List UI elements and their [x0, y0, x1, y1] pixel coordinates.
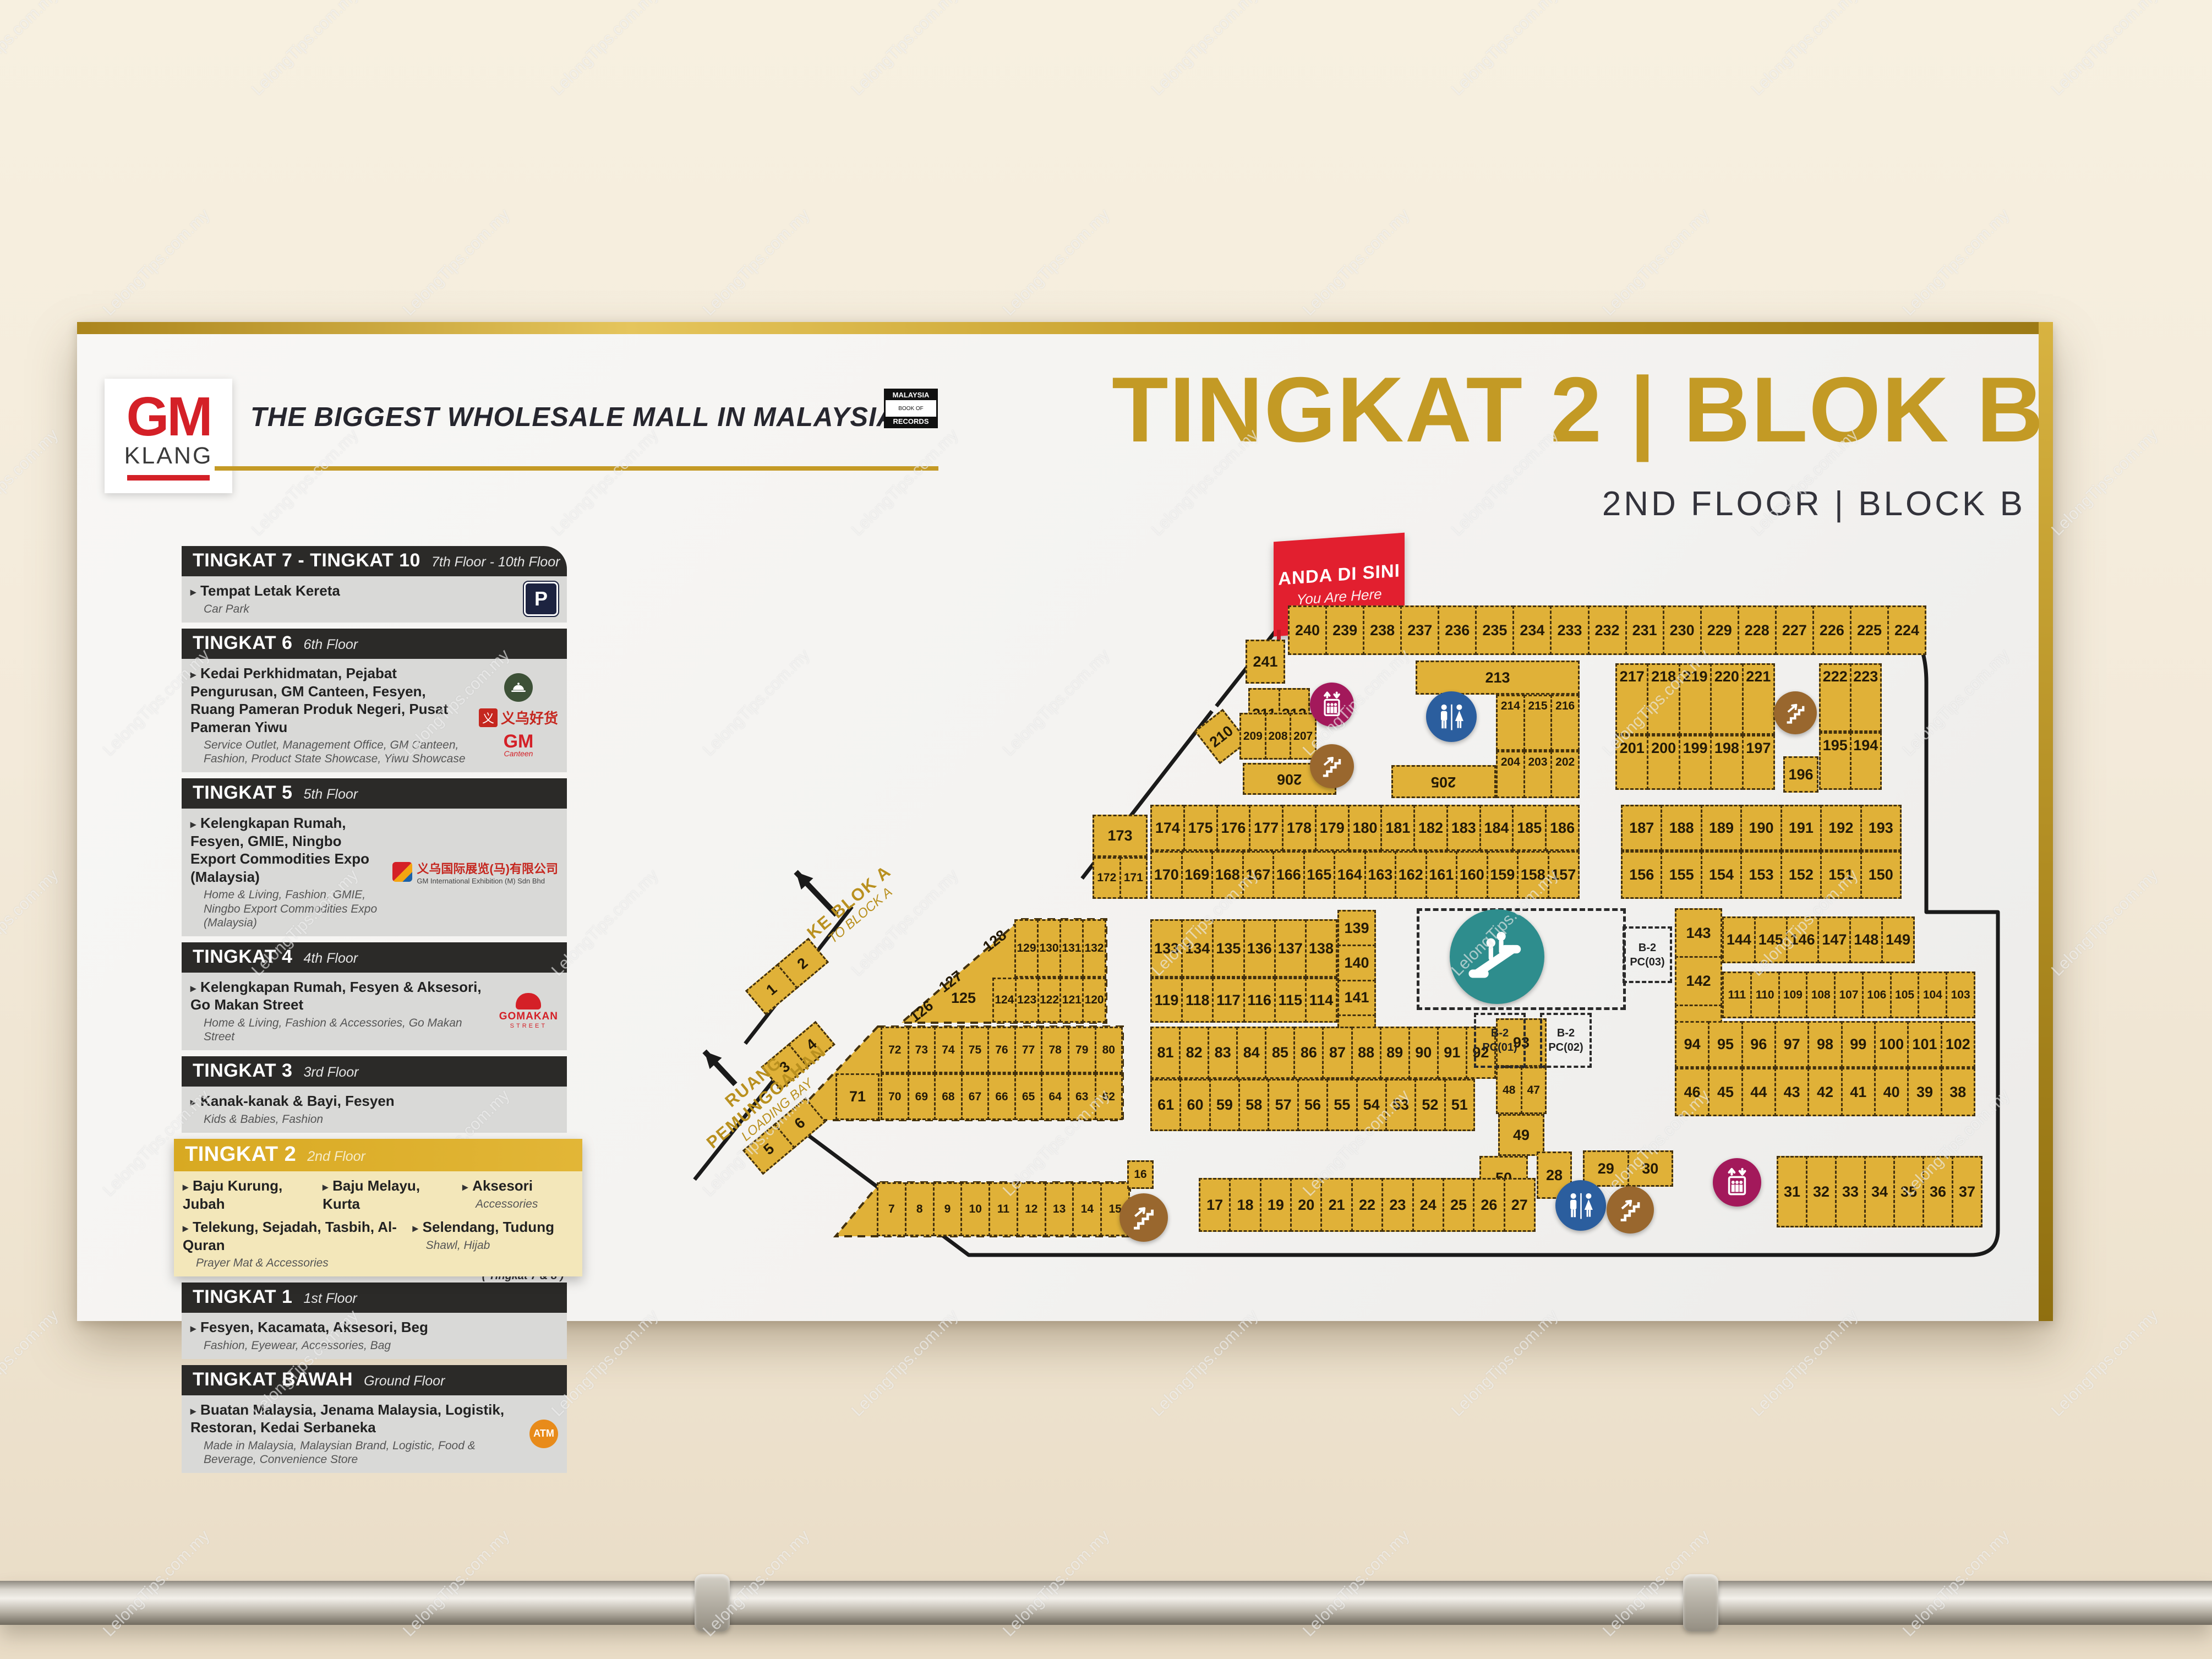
lot-number: 47	[1527, 1084, 1540, 1097]
lot-number: 10	[969, 1203, 982, 1216]
lot-number: 95	[1717, 1036, 1734, 1053]
map-lot: 161	[1425, 851, 1458, 899]
map-lot: 169	[1181, 851, 1214, 899]
lot-number: 6	[791, 1114, 808, 1132]
map-lot: 192	[1820, 805, 1861, 851]
lot-group-grp119: 119118117116115114	[1150, 978, 1337, 1023]
map-lot: 98	[1807, 1021, 1842, 1068]
lot-group-lot16: 16	[1127, 1160, 1154, 1189]
gm-klang-logo: GM KLANG	[105, 379, 232, 493]
lot-number: 203	[1528, 756, 1547, 769]
map-lot: 230	[1663, 605, 1702, 655]
map-lot: 76	[987, 1027, 1016, 1073]
map-lot: 172	[1093, 857, 1121, 899]
lot-number: 134	[1185, 940, 1210, 957]
section-body: ▸Buatan Malaysia, Jenama Malaysia, Logis…	[182, 1395, 567, 1473]
map-lot: 231	[1625, 605, 1664, 655]
lot-number: 185	[1517, 820, 1542, 837]
section-title: TINGKAT 7 - TINGKAT 10	[193, 550, 420, 571]
lot-number: 207	[1293, 730, 1313, 743]
lot-number: 215	[1528, 700, 1547, 713]
lot-number: 142	[1686, 973, 1711, 990]
directory-section-tingkat-3: TINGKAT 3 3rd Floor ▸Kanak-kanak & Bayi,…	[182, 1056, 567, 1133]
lot-group-lot49: 49	[1498, 1114, 1544, 1156]
lot-group-grp46: 464544434241403938	[1675, 1068, 1975, 1116]
chef-hat-icon	[516, 993, 541, 1009]
lot-number: 232	[1595, 622, 1620, 639]
map-lot: 147	[1817, 916, 1851, 963]
lot-number: 123	[1017, 994, 1036, 1007]
map-lot: 225	[1850, 605, 1889, 655]
lot-number: 192	[1828, 820, 1853, 837]
map-lot: 91	[1437, 1027, 1467, 1079]
lot-number: 122	[1040, 994, 1059, 1007]
lot-number: 84	[1243, 1044, 1260, 1061]
map-lot: 144	[1722, 916, 1756, 963]
map-lot: 157	[1548, 851, 1580, 899]
lot-number: 157	[1551, 866, 1576, 883]
lot-group-grp144: 144145146147148149	[1722, 916, 1915, 963]
lot-number: 146	[1790, 931, 1815, 948]
lot-number: 23	[1389, 1197, 1406, 1214]
map-lot: 181	[1380, 805, 1415, 851]
map-lot: 213	[1416, 661, 1580, 695]
item-my: ▸Kanak-kanak & Bayi, Fesyen	[190, 1092, 558, 1110]
map-lot: 156	[1621, 851, 1662, 899]
item-my: ▸Aksesori	[462, 1177, 566, 1195]
board-gold-top-edge	[77, 322, 2053, 334]
section-floor-en: 4th Floor	[303, 951, 358, 967]
lift-icon	[1310, 683, 1354, 727]
lot-number: 143	[1686, 925, 1711, 942]
lot-number: 68	[942, 1090, 954, 1104]
map-lot: 124	[992, 978, 1017, 1023]
section-body: ▸Kanak-kanak & Bayi, Fesyen Kids & Babie…	[182, 1087, 567, 1133]
map-lot: 117	[1212, 978, 1244, 1023]
map-lot: 42	[1807, 1068, 1842, 1116]
lot-number: 89	[1386, 1044, 1403, 1061]
badge-line-1: MALAYSIA	[886, 390, 936, 400]
section-floor-en: 5th Floor	[303, 787, 358, 803]
map-lot: 18	[1229, 1178, 1261, 1232]
kiosk-label: B-2	[1557, 1026, 1575, 1040]
map-lot: 238	[1363, 605, 1402, 655]
lot-number: 90	[1415, 1044, 1432, 1061]
lot-group-grp7: 789101112131415	[877, 1182, 1130, 1236]
map-lot: 129	[1014, 919, 1039, 978]
map-lot: 34	[1864, 1156, 1895, 1227]
lot-number: 167	[1246, 866, 1270, 883]
map-lot: 220	[1710, 663, 1743, 735]
map-lot: 30	[1627, 1150, 1674, 1187]
map-lot: 33	[1835, 1156, 1866, 1227]
map-lot: 80	[1095, 1027, 1123, 1073]
section-title: TINGKAT 1	[193, 1286, 292, 1308]
section-header: TINGKAT 4 4th Floor	[182, 942, 567, 973]
lot-number: 7	[888, 1203, 895, 1216]
map-lot: 37	[1952, 1156, 1982, 1227]
map-lot: 64	[1041, 1073, 1069, 1120]
malaysia-book-of-records-badge: MALAYSIA BOOK OF RECORDS	[884, 389, 938, 428]
section-title: TINGKAT 5	[193, 782, 292, 804]
photo-watermark: LelongTips.com.my	[548, 0, 662, 100]
lot-number: 111	[1728, 989, 1746, 1002]
lot-number: 96	[1750, 1036, 1767, 1053]
lot-group-grp217: 217218219220221	[1615, 663, 1775, 735]
map-lot: 67	[961, 1073, 990, 1120]
map-lot: 110	[1750, 972, 1780, 1018]
photo-watermark: LelongTips.com.my	[0, 0, 62, 100]
lot-number: 132	[1084, 942, 1104, 955]
map-lot: 229	[1700, 605, 1739, 655]
lot-number: 24	[1420, 1197, 1437, 1214]
map-lot-label: 125	[951, 990, 976, 1007]
lot-number: 168	[1215, 866, 1240, 883]
logo-klang-text: KLANG	[124, 443, 213, 470]
lot-number: 155	[1669, 866, 1694, 883]
lot-number: 102	[1946, 1036, 1970, 1053]
lot-number: 172	[1097, 871, 1116, 885]
map-lot: 155	[1661, 851, 1702, 899]
map-lot: 228	[1738, 605, 1777, 655]
lot-number: 130	[1039, 942, 1058, 955]
section-title: TINGKAT 6	[193, 632, 292, 654]
lot-number: 170	[1154, 866, 1179, 883]
item-en: Car Park	[204, 602, 518, 616]
map-lot: 46	[1675, 1068, 1709, 1116]
map-lot: 216	[1550, 695, 1580, 751]
map-lot: 86	[1293, 1027, 1324, 1079]
stairs-icon	[1310, 744, 1354, 788]
map-lot: 103	[1946, 972, 1975, 1018]
map-lot: 131	[1059, 919, 1084, 978]
lot-number: 221	[1746, 668, 1771, 685]
map-lot: 14	[1072, 1182, 1102, 1236]
yiwu-text: 义乌好货	[501, 707, 558, 728]
map-lot: 11	[988, 1182, 1018, 1236]
lot-number: 78	[1048, 1044, 1061, 1057]
lot-group-lot213: 213	[1416, 661, 1580, 695]
lot-number: 35	[1900, 1183, 1917, 1200]
lot-number: 166	[1276, 866, 1301, 883]
photo-watermark: LelongTips.com.my	[2048, 1306, 2162, 1420]
map-lot: 104	[1918, 972, 1947, 1018]
gold-divider-line	[215, 466, 938, 471]
badge-line-2: BOOK OF	[886, 400, 936, 417]
section-body: ▸Baju Kurung, Jubah ▸Baju Melayu, Kurta …	[174, 1171, 582, 1276]
map-lot: 12	[1017, 1182, 1046, 1236]
lot-number: 158	[1521, 866, 1545, 883]
map-lot: 111	[1722, 972, 1752, 1018]
item-my: ▸Fesyen, Kacamata, Aksesori, Beg	[190, 1318, 558, 1336]
kiosk-box: B-2PC(03)	[1623, 926, 1672, 983]
photo-of-mall-directory-sign: GM KLANG THE BIGGEST WHOLESALE MALL IN M…	[0, 0, 2212, 1659]
lot-number: 153	[1749, 866, 1773, 883]
lot-group-grp156: 156155154153152151150	[1621, 851, 1902, 899]
map-lot: 182	[1413, 805, 1448, 851]
lot-number: 210	[1206, 722, 1237, 751]
map-lot: 66	[987, 1073, 1016, 1120]
map-lot: 135	[1212, 919, 1244, 978]
lot-number: 88	[1358, 1044, 1374, 1061]
directory-section-tingkat-bawah: TINGKAT BAWAH Ground Floor ▸Buatan Malay…	[182, 1365, 567, 1473]
lot-number: 64	[1048, 1090, 1061, 1104]
map-lot: 134	[1181, 919, 1214, 978]
lot-number: 200	[1651, 740, 1676, 757]
lot-number: 1	[763, 980, 780, 998]
lot-group-grp111: 111110109108107106105104103	[1722, 972, 1975, 1018]
map-lot: 59	[1209, 1079, 1240, 1131]
map-lot: 10	[960, 1182, 990, 1236]
lot-number: 224	[1894, 622, 1919, 639]
item-my: ▸Telekung, Sejadah, Tasbih, Al-Quran	[183, 1218, 405, 1254]
lot-number: 160	[1460, 866, 1484, 883]
map-lot: 105	[1890, 972, 1920, 1018]
section-title: TINGKAT BAWAH	[193, 1369, 353, 1390]
map-lot: 57	[1268, 1079, 1298, 1131]
map-lot: 239	[1325, 605, 1364, 655]
lot-number: 204	[1501, 756, 1520, 769]
map-lot: 164	[1334, 851, 1366, 899]
you-are-here-my: ANDA DI SINI	[1278, 560, 1400, 589]
lot-number: 150	[1869, 866, 1893, 883]
lot-number: 222	[1823, 668, 1848, 685]
lot-number: 156	[1629, 866, 1654, 883]
lot-number: 107	[1839, 989, 1858, 1002]
map-lot: 24	[1412, 1178, 1444, 1232]
map-lot: 197	[1742, 735, 1775, 790]
section-title: TINGKAT 3	[193, 1060, 292, 1082]
lot-number: 86	[1301, 1044, 1317, 1061]
lot-number: 41	[1850, 1084, 1866, 1101]
map-lot: 94	[1675, 1021, 1709, 1068]
photo-watermark: LelongTips.com.my	[0, 866, 62, 980]
lot-number: 176	[1221, 820, 1246, 837]
section-header: TINGKAT 2 2nd Floor	[174, 1139, 582, 1171]
map-lot: 177	[1249, 805, 1283, 851]
lot-number: 149	[1886, 931, 1910, 948]
map-lot: 63	[1068, 1073, 1096, 1120]
lot-number: 136	[1247, 940, 1272, 957]
map-lot: 77	[1014, 1027, 1043, 1073]
lot-number: 118	[1186, 992, 1210, 1009]
map-lot: 83	[1208, 1027, 1238, 1079]
map-lot: 99	[1841, 1021, 1876, 1068]
map-lot: 114	[1305, 978, 1337, 1023]
map-lot: 87	[1322, 1027, 1352, 1079]
lot-number: 138	[1309, 940, 1334, 957]
section-body: ▸Kelengkapan Rumah, Fesyen, GMIE, Ningbo…	[182, 809, 567, 936]
kiosk-box: B-2PC(02)	[1540, 1013, 1592, 1068]
map-lot: 143	[1675, 908, 1722, 958]
photo-watermark: LelongTips.com.my	[1599, 205, 1713, 319]
map-lot: 214	[1496, 695, 1525, 751]
stairs-icon	[1774, 691, 1817, 734]
map-lot: 146	[1786, 916, 1820, 963]
map-lot: 227	[1775, 605, 1814, 655]
map-lot: 196	[1783, 756, 1818, 793]
photo-watermark: LelongTips.com.my	[1748, 0, 1862, 100]
lot-group-lot196: 196	[1783, 756, 1818, 793]
section-floor-en: 7th Floor - 10th Floor	[432, 554, 560, 570]
lot-number: 225	[1857, 622, 1882, 639]
lot-number: 193	[1869, 820, 1893, 837]
lot-group-grp17: 1718192021222324252627	[1199, 1178, 1536, 1232]
lot-number: 199	[1683, 740, 1707, 757]
lot-number: 9	[944, 1203, 951, 1216]
map-lot: 96	[1741, 1021, 1776, 1068]
lot-number: 55	[1334, 1096, 1350, 1114]
photo-watermark: LelongTips.com.my	[100, 205, 214, 319]
lot-number: 121	[1062, 994, 1082, 1007]
map-lot: 222	[1819, 663, 1851, 732]
map-lot: 160	[1456, 851, 1488, 899]
map-lot: 41	[1841, 1068, 1876, 1116]
item-en: Service Outlet, Management Office, GM Ca…	[204, 738, 473, 766]
lot-number: 179	[1320, 820, 1345, 837]
item-en: Made in Malaysia, Malaysian Brand, Logis…	[204, 1439, 524, 1466]
map-lot: 163	[1364, 851, 1397, 899]
lot-number: 18	[1237, 1197, 1254, 1214]
lot-number: 105	[1895, 989, 1914, 1002]
street-text: STREET	[499, 1023, 558, 1029]
lot-number: 238	[1370, 622, 1395, 639]
lot-number: 36	[1930, 1183, 1946, 1200]
section-floor-en: 2nd Floor	[307, 1149, 365, 1165]
lot-number: 201	[1620, 740, 1645, 757]
lot-number: 56	[1304, 1096, 1321, 1114]
lot-group-grp124: 124123122121120	[992, 978, 1106, 1023]
map-lot: 200	[1647, 735, 1680, 790]
lot-number: 79	[1075, 1044, 1088, 1057]
lot-number: 205	[1431, 773, 1456, 790]
section-body: ▸Kedai Perkhidmatan, Pejabat Pengurusan,…	[182, 659, 567, 772]
lot-number: 58	[1246, 1096, 1262, 1114]
kiosk-label: B-2	[1638, 941, 1656, 955]
lot-number: 49	[1513, 1127, 1530, 1144]
item-my: ▸Tempat Letak Kereta	[190, 582, 518, 600]
lot-number: 101	[1912, 1036, 1937, 1053]
lot-number: 229	[1707, 622, 1732, 639]
map-lot: 101	[1907, 1021, 1942, 1068]
lot-number: 12	[1025, 1203, 1037, 1216]
map-lot: 136	[1243, 919, 1276, 978]
lot-group-grp222: 222223	[1819, 663, 1882, 732]
map-lot: 95	[1708, 1021, 1743, 1068]
map-lot: 8	[905, 1182, 935, 1236]
lot-number: 25	[1450, 1197, 1467, 1214]
map-lot: 62	[1095, 1073, 1123, 1120]
kiosk-label: PC(03)	[1630, 955, 1664, 969]
gm-canteen-sub: Canteen	[504, 750, 534, 757]
map-lot: 120	[1082, 978, 1106, 1023]
lot-number: 21	[1329, 1197, 1345, 1214]
lot-number: 52	[1422, 1096, 1438, 1114]
map-lot: 165	[1303, 851, 1336, 899]
lot-number: 44	[1750, 1084, 1767, 1101]
map-lot: 116	[1243, 978, 1276, 1023]
item-en: Home & Living, Fashion, GMIE, Ningbo Exp…	[204, 888, 387, 930]
lot-number: 63	[1075, 1090, 1088, 1104]
directory-section-tingkat-2-highlighted: TINGKAT 2 2nd Floor ▸Baju Kurung, Jubah …	[174, 1139, 582, 1276]
lot-number: 42	[1817, 1084, 1833, 1101]
map-lot: 56	[1297, 1079, 1328, 1131]
lot-number: 173	[1107, 827, 1132, 844]
photo-watermark: LelongTips.com.my	[0, 1306, 62, 1420]
section-floor-en: 6th Floor	[303, 637, 358, 653]
lot-number: 66	[995, 1090, 1008, 1104]
photo-watermark: LelongTips.com.my	[0, 425, 62, 539]
lot-number: 97	[1784, 1036, 1800, 1053]
map-lot: 208	[1265, 713, 1292, 760]
handrail-bracket	[1683, 1574, 1718, 1631]
map-lot: 145	[1754, 916, 1788, 963]
lot-number: 131	[1062, 942, 1081, 955]
map-lot: 175	[1183, 805, 1218, 851]
map-lot: 52	[1414, 1079, 1445, 1131]
map-lot: 106	[1862, 972, 1892, 1018]
lift-icon	[1713, 1158, 1761, 1207]
map-lot: 102	[1941, 1021, 1975, 1068]
lot-number: 180	[1352, 820, 1377, 837]
lot-number: 116	[1247, 992, 1271, 1009]
yiwu-logo: 义 义乌好货	[479, 707, 558, 728]
lot-number: 39	[1916, 1084, 1933, 1101]
photo-watermark: LelongTips.com.my	[1000, 205, 1113, 319]
map-lot: 179	[1315, 805, 1350, 851]
map-lot: 151	[1820, 851, 1861, 899]
lot-number: 220	[1714, 668, 1739, 685]
directory-section-tingkat-1: TINGKAT 1 1st Floor ▸Fesyen, Kacamata, A…	[182, 1283, 567, 1359]
canteen-icon	[504, 673, 533, 702]
map-lot: 121	[1059, 978, 1084, 1023]
lot-number: 162	[1399, 866, 1423, 883]
kiosk-label: B-2	[1491, 1026, 1509, 1040]
lot-group-grp195: 195194	[1819, 732, 1882, 790]
lot-number: 77	[1022, 1044, 1035, 1057]
map-lot: 118	[1181, 978, 1214, 1023]
lot-number: 141	[1344, 989, 1369, 1006]
map-lot: 20	[1290, 1178, 1322, 1232]
lot-number: 226	[1820, 622, 1844, 639]
lot-number: 151	[1828, 866, 1853, 883]
lot-number: 103	[1951, 989, 1970, 1002]
map-lot: 224	[1887, 605, 1926, 655]
map-lot: 240	[1288, 605, 1327, 655]
lot-number: 119	[1155, 992, 1179, 1009]
gm-canteen-logo: GM Canteen	[504, 733, 534, 757]
lot-number: 46	[1684, 1084, 1701, 1101]
map-lot: 185	[1512, 805, 1547, 851]
item-my: ▸Baju Melayu, Kurta	[323, 1177, 455, 1213]
stairs-icon	[1119, 1193, 1168, 1242]
map-lot: 139	[1337, 910, 1376, 946]
slogan: THE BIGGEST WHOLESALE MALL IN MALAYSIA	[250, 402, 897, 433]
section-floor-en: 3rd Floor	[303, 1065, 358, 1080]
lot-number: 148	[1854, 931, 1878, 948]
lot-group-grp209: 209208207	[1239, 713, 1317, 760]
lot-group-lot71: 71	[835, 1073, 880, 1120]
map-lot: 235	[1475, 605, 1514, 655]
lot-number: 69	[915, 1090, 928, 1104]
lot-number: 75	[969, 1044, 981, 1057]
handrail-bracket	[695, 1574, 730, 1631]
map-lot: 158	[1517, 851, 1549, 899]
photo-watermark: LelongTips.com.my	[1148, 1306, 1262, 1420]
badge-line-3: RECORDS	[886, 417, 936, 427]
lot-number: 161	[1429, 866, 1454, 883]
lot-number: 17	[1206, 1197, 1223, 1214]
